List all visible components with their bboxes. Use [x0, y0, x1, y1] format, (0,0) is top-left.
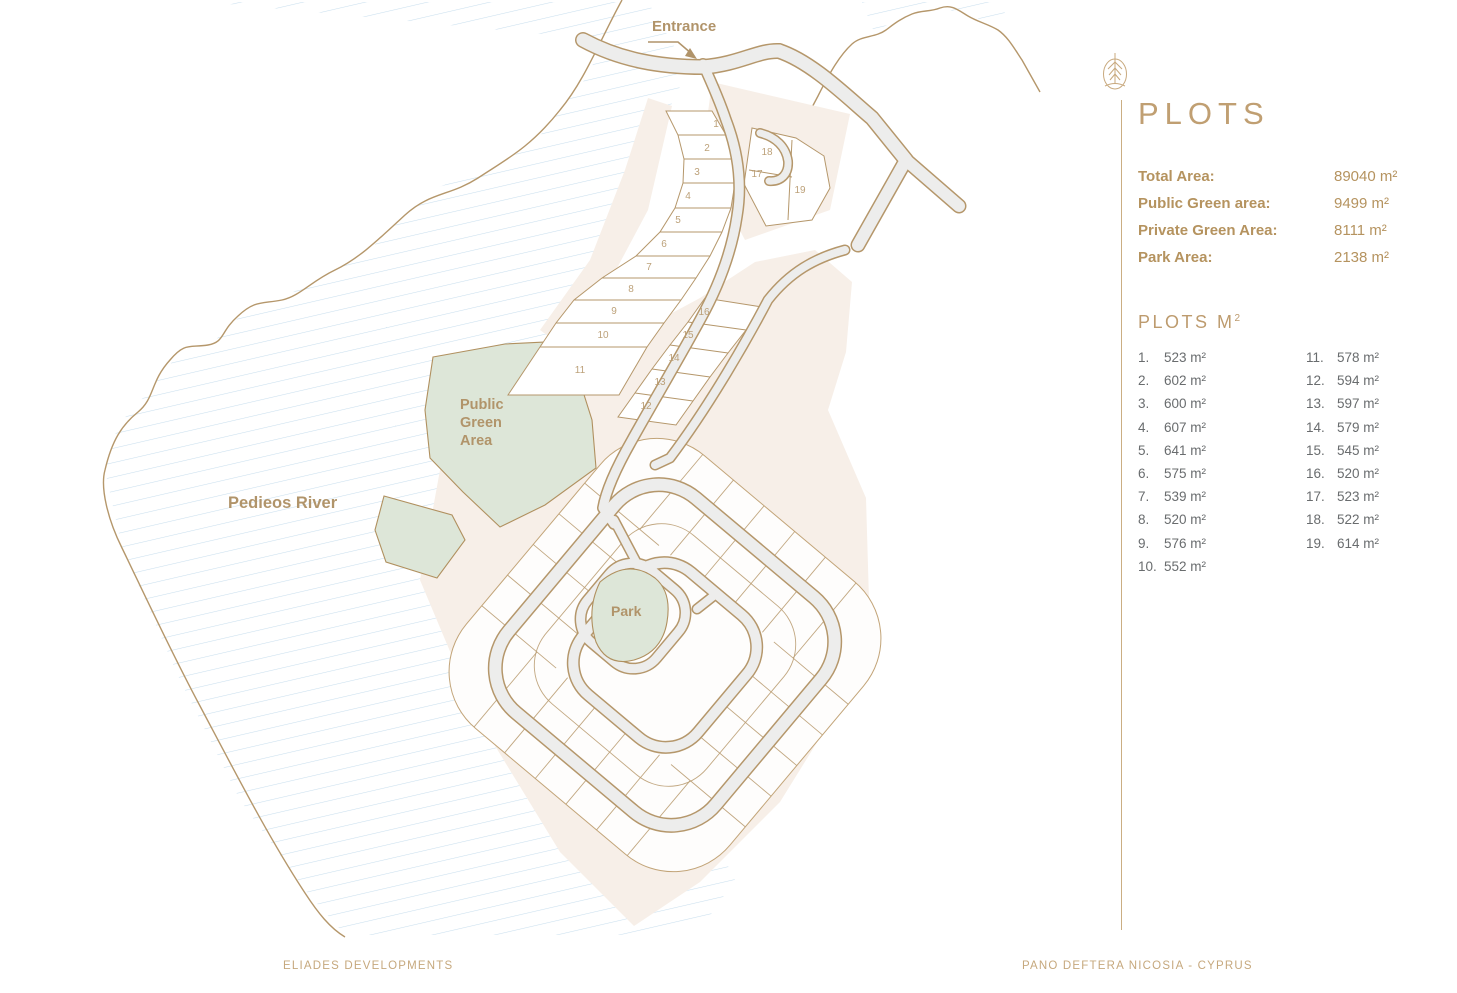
- plot-area: 578 m²: [1337, 350, 1379, 365]
- plot-area: 597 m²: [1337, 396, 1379, 411]
- stat-value: 8111 m²: [1334, 222, 1387, 239]
- stat-value: 9499 m²: [1334, 195, 1389, 212]
- plot-number-12: 12: [640, 401, 652, 412]
- plots-list-column-2: 11.578 m² 12.594 m² 13.597 m² 14.579 m² …: [1306, 346, 1379, 555]
- plot-number-13: 13: [654, 377, 666, 388]
- plot-area: 576 m²: [1164, 536, 1206, 551]
- plots-list-column-1: 1.523 m² 2.602 m² 3.600 m² 4.607 m² 5.64…: [1138, 346, 1206, 578]
- stat-label: Park Area:: [1138, 249, 1334, 266]
- plot-number-1: 1: [713, 119, 719, 130]
- site-plan-page: { "colors": { "accent_tan": "#b5976b", "…: [0, 0, 1457, 993]
- list-item: 9.576 m²: [1138, 532, 1206, 555]
- plot-index: 7.: [1138, 485, 1164, 508]
- plot-index: 5.: [1138, 439, 1164, 462]
- stat-row-park-area: Park Area: 2138 m²: [1138, 244, 1398, 271]
- list-item: 3.600 m²: [1138, 392, 1206, 415]
- plot-index: 6.: [1138, 462, 1164, 485]
- plot-area: 523 m²: [1164, 350, 1206, 365]
- stat-row-private-green: Private Green Area: 8111 m²: [1138, 217, 1398, 244]
- plot-number-15: 15: [682, 330, 694, 341]
- list-item: 8.520 m²: [1138, 508, 1206, 531]
- site-plan-map: Entrance Pedieos River Public Green Area…: [0, 0, 1100, 993]
- list-item: 15.545 m²: [1306, 439, 1379, 462]
- plot-area: 579 m²: [1337, 420, 1379, 435]
- list-item: 17.523 m²: [1306, 485, 1379, 508]
- plot-number-19: 19: [794, 185, 806, 196]
- plot-number-8: 8: [628, 284, 634, 295]
- stat-label: Public Green area:: [1138, 195, 1334, 212]
- plot-number-17: 17: [751, 169, 763, 180]
- plot-number-16: 16: [698, 307, 710, 318]
- plot-number-3: 3: [694, 167, 700, 178]
- list-item: 5.641 m²: [1138, 439, 1206, 462]
- plot-area: 523 m²: [1337, 489, 1379, 504]
- plot-area: 552 m²: [1164, 559, 1206, 574]
- plot-number-6: 6: [661, 239, 667, 250]
- stat-label: Total Area:: [1138, 168, 1334, 185]
- plot-index: 9.: [1138, 532, 1164, 555]
- plot-number-18: 18: [761, 147, 773, 158]
- plots-list-title: PLOTS M2: [1138, 312, 1243, 333]
- plot-area: 614 m²: [1337, 536, 1379, 551]
- panel-divider: [1121, 100, 1122, 930]
- footer-left-text: ELIADES DEVELOPMENTS: [283, 960, 453, 972]
- svg-text:Green: Green: [460, 415, 502, 431]
- plot-index: 11.: [1306, 346, 1337, 369]
- list-item: 19.614 m²: [1306, 532, 1379, 555]
- stat-value: 89040 m²: [1334, 168, 1397, 185]
- plot-number-11: 11: [575, 365, 586, 376]
- plot-number-7: 7: [646, 262, 652, 273]
- river-label: Pedieos River: [228, 494, 338, 512]
- plot-area: 607 m²: [1164, 420, 1206, 435]
- plot-number-14: 14: [668, 353, 680, 364]
- svg-text:Area: Area: [460, 433, 493, 449]
- area-stats: Total Area: 89040 m² Public Green area: …: [1138, 163, 1398, 271]
- plot-index: 3.: [1138, 392, 1164, 415]
- stat-value: 2138 m²: [1334, 249, 1389, 266]
- plot-index: 17.: [1306, 485, 1337, 508]
- plot-area: 594 m²: [1337, 373, 1379, 388]
- plot-area: 600 m²: [1164, 396, 1206, 411]
- plot-area: 522 m²: [1337, 512, 1379, 527]
- stat-row-public-green: Public Green area: 9499 m²: [1138, 190, 1398, 217]
- plot-number-10: 10: [597, 330, 609, 341]
- plot-index: 12.: [1306, 369, 1337, 392]
- plot-area: 545 m²: [1337, 443, 1379, 458]
- plot-number-5: 5: [675, 215, 681, 226]
- list-item: 16.520 m²: [1306, 462, 1379, 485]
- list-item: 1.523 m²: [1138, 346, 1206, 369]
- plot-index: 19.: [1306, 532, 1337, 555]
- list-item: 12.594 m²: [1306, 369, 1379, 392]
- list-item: 10.552 m²: [1138, 555, 1206, 578]
- page-title: PLOTS: [1138, 96, 1270, 132]
- plot-number-4: 4: [685, 191, 691, 202]
- plot-number-9: 9: [611, 306, 617, 317]
- plot-index: 4.: [1138, 416, 1164, 439]
- list-item: 7.539 m²: [1138, 485, 1206, 508]
- plot-index: 10.: [1138, 555, 1164, 578]
- plot-index: 8.: [1138, 508, 1164, 531]
- plot-area: 575 m²: [1164, 466, 1206, 481]
- list-item: 4.607 m²: [1138, 416, 1206, 439]
- list-item: 13.597 m²: [1306, 392, 1379, 415]
- plot-area: 602 m²: [1164, 373, 1206, 388]
- list-item: 11.578 m²: [1306, 346, 1379, 369]
- brand-tree-icon: [1100, 50, 1132, 94]
- plot-area: 520 m²: [1164, 512, 1206, 527]
- plots-list-title-sup: 2: [1235, 313, 1243, 324]
- park-label: Park: [611, 603, 642, 619]
- plot-index: 2.: [1138, 369, 1164, 392]
- list-item: 6.575 m²: [1138, 462, 1206, 485]
- stat-label: Private Green Area:: [1138, 222, 1334, 239]
- plot-area: 641 m²: [1164, 443, 1206, 458]
- footer-right-text: PANO DEFTERA NICOSIA - CYPRUS: [1022, 960, 1253, 972]
- plot-index: 1.: [1138, 346, 1164, 369]
- plot-area: 520 m²: [1337, 466, 1379, 481]
- plot-area: 539 m²: [1164, 489, 1206, 504]
- entrance-label: Entrance: [652, 18, 716, 35]
- plot-index: 15.: [1306, 439, 1337, 462]
- plot-number-2: 2: [704, 143, 710, 154]
- plot-index: 16.: [1306, 462, 1337, 485]
- plot-index: 14.: [1306, 416, 1337, 439]
- list-item: 18.522 m²: [1306, 508, 1379, 531]
- list-item: 2.602 m²: [1138, 369, 1206, 392]
- list-item: 14.579 m²: [1306, 416, 1379, 439]
- plot-index: 13.: [1306, 392, 1337, 415]
- svg-text:Public: Public: [460, 397, 504, 413]
- stat-row-total-area: Total Area: 89040 m²: [1138, 163, 1398, 190]
- plot-index: 18.: [1306, 508, 1337, 531]
